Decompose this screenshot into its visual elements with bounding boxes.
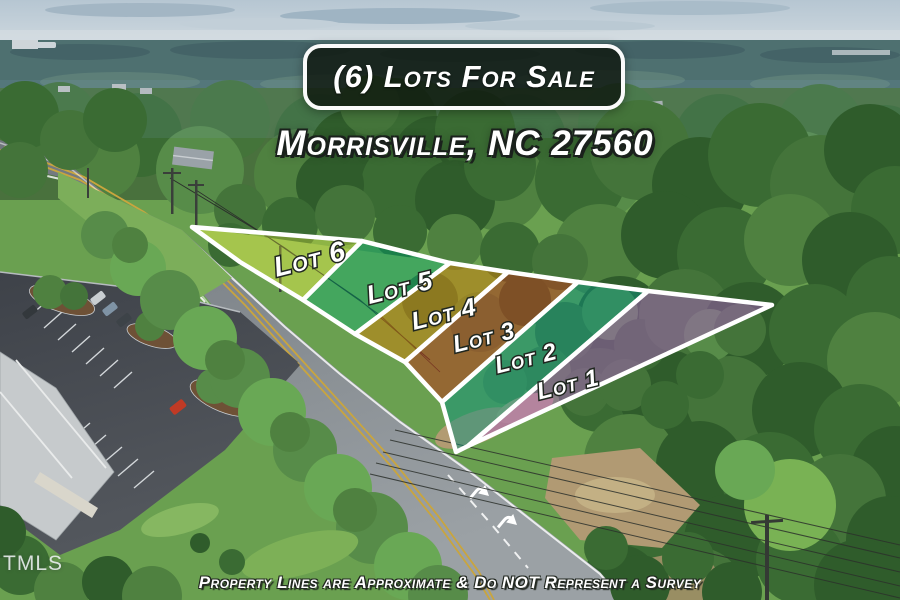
banner-title: (6) Lots For Sale [333, 59, 595, 95]
location-subtitle: Morrisville, NC 27560 [30, 124, 900, 164]
utility-pole [171, 168, 174, 214]
disclaimer-text: Property Lines are Approximate & Do NOT … [0, 573, 900, 593]
distant-road-strip [832, 50, 890, 55]
for-sale-banner: (6) Lots For Sale [303, 44, 625, 110]
aerial-listing-photo: Lot 6 Lot 5 Lot 4 Lot 3 Lot 2 Lot 1 (6) … [0, 0, 900, 600]
utility-pole [87, 168, 89, 198]
tmls-watermark: TMLS [3, 552, 63, 576]
utility-pole [195, 180, 198, 226]
